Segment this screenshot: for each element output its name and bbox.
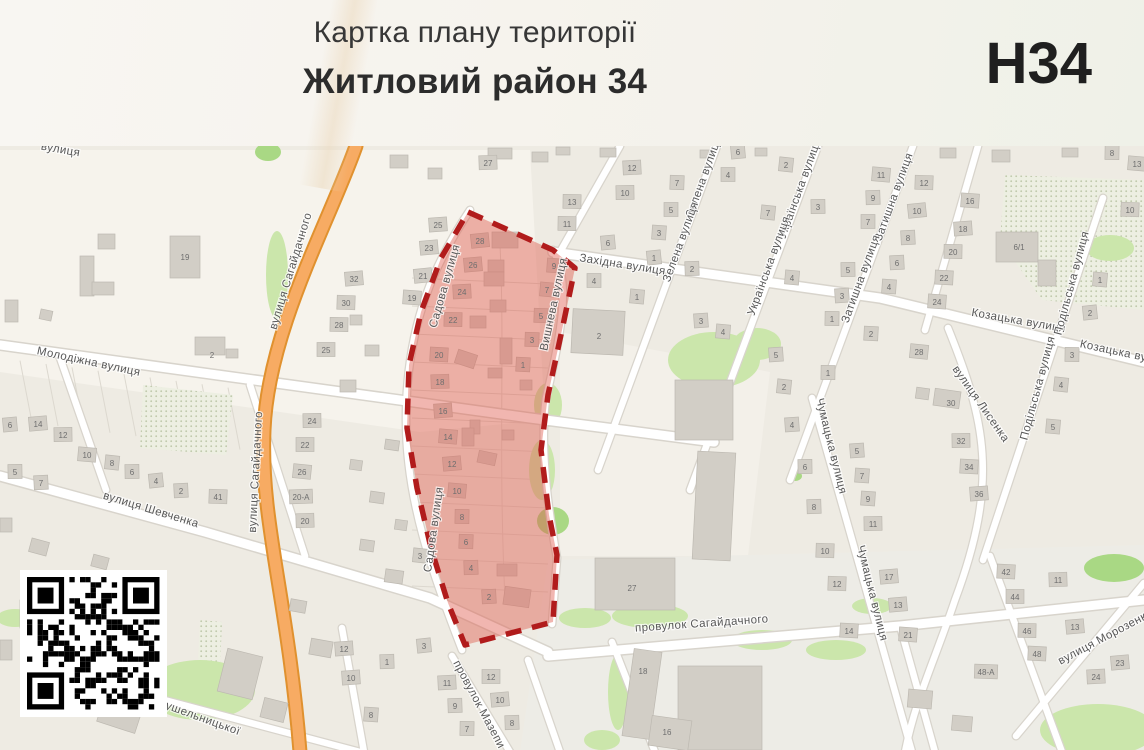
house-number: 5	[13, 468, 18, 477]
house-number: 32	[350, 275, 359, 284]
house-number: 16	[439, 407, 448, 416]
house-number: 44	[1011, 593, 1020, 602]
building	[532, 152, 548, 162]
house-number: 23	[425, 244, 434, 253]
house-number: 7	[545, 286, 550, 295]
house-number: 16	[966, 197, 975, 206]
building	[755, 148, 767, 156]
house-number: 19	[408, 294, 417, 303]
building	[384, 439, 399, 451]
house-number: 11	[877, 171, 886, 180]
house-number: 13	[568, 198, 577, 207]
house-number: 4	[887, 283, 892, 292]
house-number: 9	[552, 262, 557, 271]
building	[98, 234, 115, 249]
green-area	[559, 608, 611, 628]
building	[556, 147, 570, 155]
house-number: 12	[833, 580, 842, 589]
house-number: 34	[965, 463, 974, 472]
building	[692, 451, 736, 561]
house-number: 5	[1051, 423, 1056, 432]
house-number: 8	[510, 719, 515, 728]
house-number: 19	[181, 253, 190, 262]
building	[5, 300, 18, 322]
house-number: 10	[83, 451, 92, 460]
house-number: 4	[154, 477, 159, 486]
house-number: 8	[812, 503, 817, 512]
house-number: 20	[435, 351, 444, 360]
house-number: 6	[803, 463, 808, 472]
house-number: 13	[894, 601, 903, 610]
house-number: 22	[449, 316, 458, 325]
house-number: 6	[895, 259, 900, 268]
house-number: 4	[790, 274, 795, 283]
building	[0, 640, 12, 660]
house-number: 5	[669, 206, 674, 215]
house-number: 6	[736, 148, 741, 157]
house-number: 2	[782, 383, 787, 392]
house-number: 20	[949, 248, 958, 257]
house-number: 21	[419, 272, 428, 281]
house-number: 28	[335, 321, 344, 330]
house-number: 5	[846, 266, 851, 275]
building	[1062, 148, 1078, 157]
building	[384, 569, 404, 584]
house-number: 30	[947, 399, 956, 408]
house-number: 8	[460, 513, 465, 522]
house-number: 20-А	[293, 493, 311, 502]
house-number: 48-А	[978, 668, 996, 677]
house-number: 30	[342, 299, 351, 308]
house-number: 48	[1033, 650, 1042, 659]
house-number: 2	[869, 330, 874, 339]
house-number: 6	[606, 239, 611, 248]
building	[428, 168, 442, 179]
house-number: 10	[621, 189, 630, 198]
building	[992, 150, 1010, 162]
house-number: 3	[840, 292, 845, 301]
house-number: 6	[8, 421, 13, 430]
house-number: 12	[448, 460, 457, 469]
house-number: 3	[530, 336, 535, 345]
house-number: 14	[444, 433, 453, 442]
house-number: 4	[592, 277, 597, 286]
house-number: 4	[1059, 381, 1064, 390]
house-number: 12	[920, 179, 929, 188]
house-number: 27	[628, 584, 637, 593]
house-number: 12	[628, 164, 637, 173]
house-number: 22	[940, 274, 949, 283]
building	[940, 148, 956, 158]
house-number: 2	[179, 487, 184, 496]
title-block: Картка плану території Житловий район 34	[190, 16, 760, 102]
house-number: 2	[210, 351, 215, 360]
house-number: 7	[675, 179, 680, 188]
building	[39, 309, 53, 321]
house-number: 2	[784, 161, 789, 170]
house-number: 18	[639, 667, 648, 676]
house-number: 3	[418, 552, 423, 561]
building	[289, 599, 307, 614]
house-number: 7	[465, 725, 470, 734]
house-number: 36	[975, 490, 984, 499]
house-number: 10	[821, 547, 830, 556]
house-number: 18	[959, 225, 968, 234]
house-number: 8	[1110, 149, 1115, 158]
house-number: 26	[298, 468, 307, 477]
house-number: 4	[790, 421, 795, 430]
house-number: 7	[860, 472, 865, 481]
house-number: 11	[443, 679, 452, 688]
house-number: 14	[34, 420, 43, 429]
house-number: 8	[369, 711, 374, 720]
house-number: 3	[699, 317, 704, 326]
house-number: 28	[915, 348, 924, 357]
house-number: 1	[385, 658, 390, 667]
house-number: 41	[214, 493, 223, 502]
house-number: 17	[885, 573, 894, 582]
house-number: 6	[130, 468, 135, 477]
house-number: 10	[347, 674, 356, 683]
house-number: 24	[1092, 673, 1101, 682]
house-number: 22	[301, 441, 310, 450]
house-number: 14	[845, 627, 854, 636]
house-number: 7	[766, 209, 771, 218]
house-number: 5	[539, 312, 544, 321]
house-number: 25	[434, 221, 443, 230]
territory-map: Молодіжна вулицявулиця Шевченкавулиця Са…	[0, 146, 1144, 750]
house-number: 24	[308, 417, 317, 426]
house-number: 46	[1023, 627, 1032, 636]
house-number: 4	[726, 171, 731, 180]
house-number: 1	[521, 361, 526, 370]
house-number: 7	[39, 479, 44, 488]
building	[226, 349, 238, 358]
house-number: 12	[340, 645, 349, 654]
house-number: 32	[957, 437, 966, 446]
house-number: 10	[453, 487, 462, 496]
house-number: 1	[652, 254, 657, 263]
page-header: Картка плану території Житловий район 34…	[0, 0, 1144, 146]
building	[915, 387, 929, 400]
house-number: 8	[110, 459, 115, 468]
green-area	[584, 730, 620, 750]
house-number: 26	[469, 261, 478, 270]
house-number: 1	[826, 369, 831, 378]
house-number: 2	[1088, 309, 1093, 318]
house-number: 3	[657, 229, 662, 238]
house-number: 1	[635, 293, 640, 302]
house-number: 13	[1133, 160, 1142, 169]
house-number: 28	[476, 237, 485, 246]
house-number: 2	[597, 332, 602, 341]
qr-code	[20, 570, 167, 717]
house-number: 9	[453, 702, 458, 711]
house-number: 23	[1116, 659, 1125, 668]
green-area	[1084, 554, 1144, 582]
house-number: 3	[816, 203, 821, 212]
building	[907, 689, 932, 709]
building	[309, 638, 333, 658]
house-number: 25	[322, 346, 331, 355]
house-number: 21	[904, 631, 913, 640]
house-number: 4	[469, 564, 474, 573]
page-subtitle: Картка плану території	[190, 16, 760, 50]
house-number: 12	[487, 673, 496, 682]
house-number: 6	[464, 538, 469, 547]
house-number: 9	[871, 194, 876, 203]
house-number: 20	[301, 517, 310, 526]
house-number: 10	[496, 696, 505, 705]
sheet-code: Н34	[986, 30, 1092, 97]
building	[675, 380, 733, 440]
building	[349, 459, 362, 471]
house-number: 10	[913, 207, 922, 216]
house-number: 8	[906, 234, 911, 243]
map-canvas: Молодіжна вулицявулиця Шевченкавулиця Са…	[0, 146, 1144, 750]
building	[1038, 260, 1056, 286]
house-number: 13	[1071, 623, 1080, 632]
building	[600, 148, 616, 157]
page-title: Житловий район 34	[190, 62, 760, 102]
house-number: 11	[563, 220, 572, 229]
house-number: 3	[422, 642, 427, 651]
house-number: 24	[933, 298, 942, 307]
house-number: 9	[866, 495, 871, 504]
building	[92, 282, 114, 295]
house-number: 12	[59, 431, 68, 440]
house-number: 42	[1002, 568, 1011, 577]
house-number: 11	[869, 520, 878, 529]
house-number: 10	[1126, 206, 1135, 215]
house-number: 4	[721, 328, 726, 337]
house-number: 24	[458, 288, 467, 297]
building	[0, 518, 12, 532]
building	[678, 666, 762, 750]
house-number: 27	[484, 159, 493, 168]
house-number: 2	[690, 265, 695, 274]
building	[369, 491, 384, 504]
house-number: 16	[663, 728, 672, 737]
building	[365, 345, 379, 356]
green-area	[806, 640, 866, 660]
house-number: 5	[774, 351, 779, 360]
building	[951, 715, 972, 732]
building	[390, 155, 408, 168]
house-number: 1	[830, 315, 835, 324]
house-number: 11	[1054, 576, 1063, 585]
building	[394, 519, 407, 531]
building	[340, 380, 356, 392]
house-number: 18	[436, 378, 445, 387]
house-number: 7	[866, 218, 871, 227]
house-number: 5	[855, 447, 860, 456]
house-number: 3	[1070, 351, 1075, 360]
house-number: 1	[1098, 276, 1103, 285]
building	[350, 315, 362, 325]
house-number: 2	[487, 593, 492, 602]
building	[359, 539, 374, 552]
house-number: 6/1	[1013, 243, 1025, 252]
